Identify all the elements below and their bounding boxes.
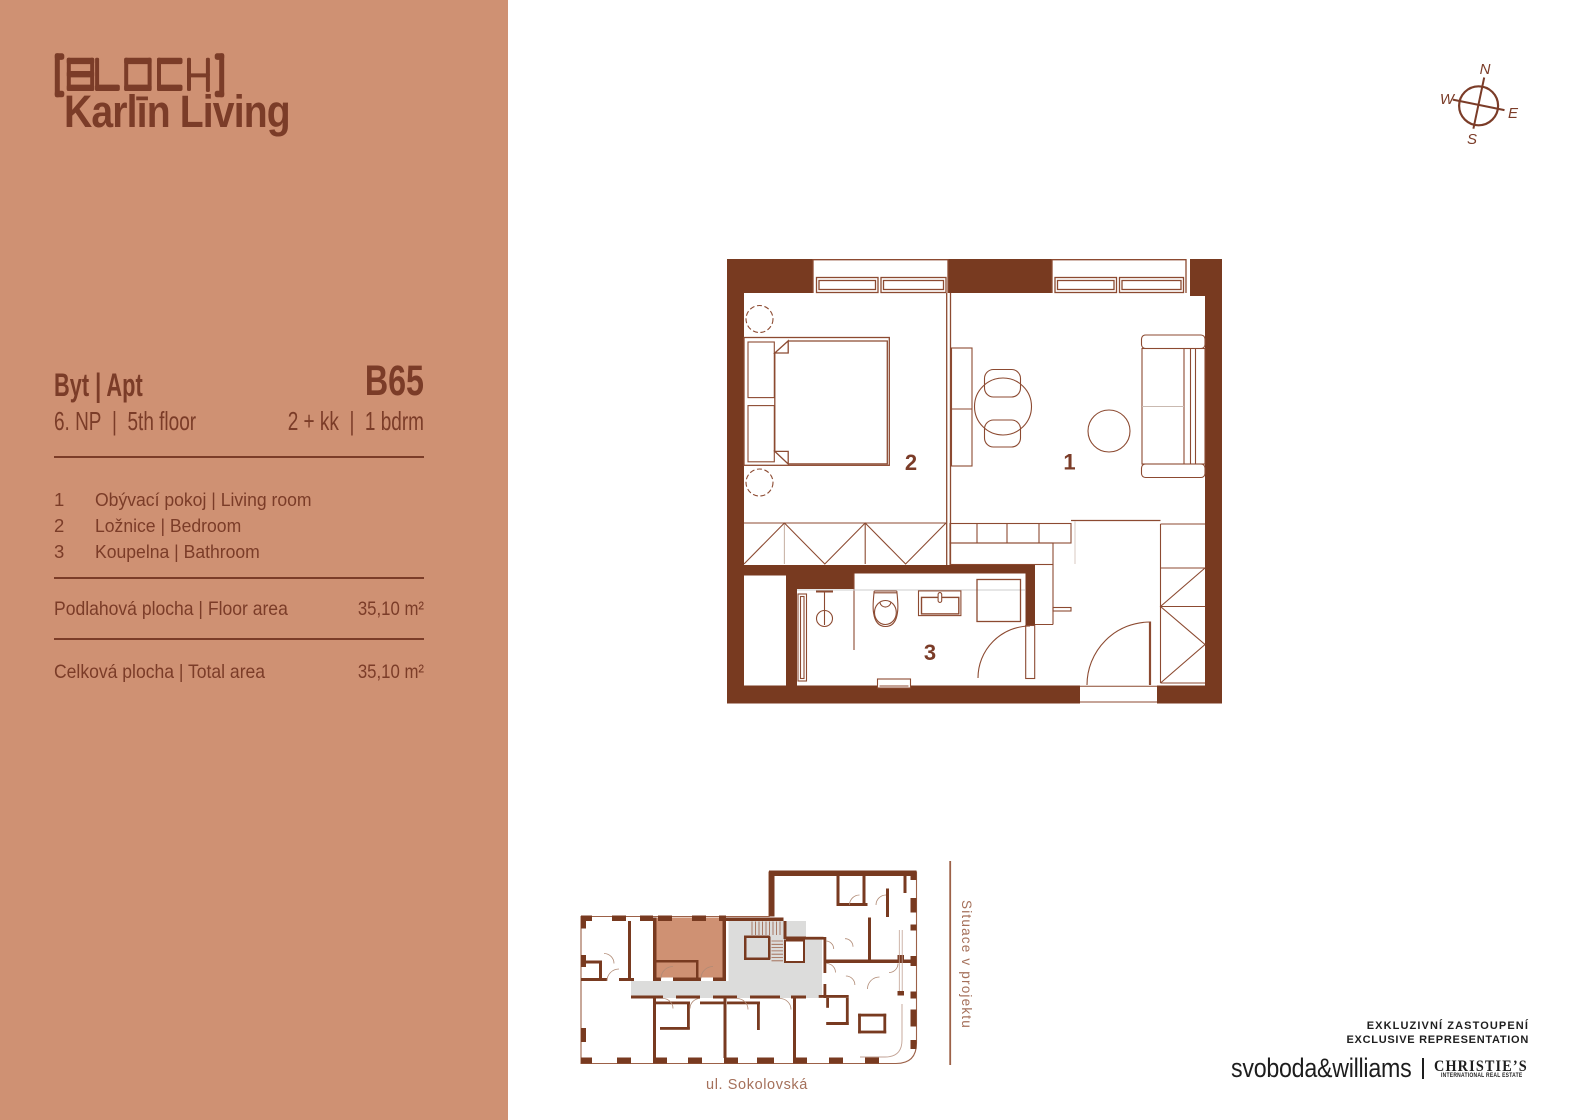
svg-text:E: E xyxy=(1508,105,1519,122)
svg-text:1: 1 xyxy=(1063,450,1075,475)
svg-text:3: 3 xyxy=(924,640,936,665)
svg-text:W: W xyxy=(1440,91,1456,108)
svg-text:S: S xyxy=(1467,131,1477,148)
svg-text:N: N xyxy=(1480,61,1491,78)
svg-text:2: 2 xyxy=(905,450,917,475)
